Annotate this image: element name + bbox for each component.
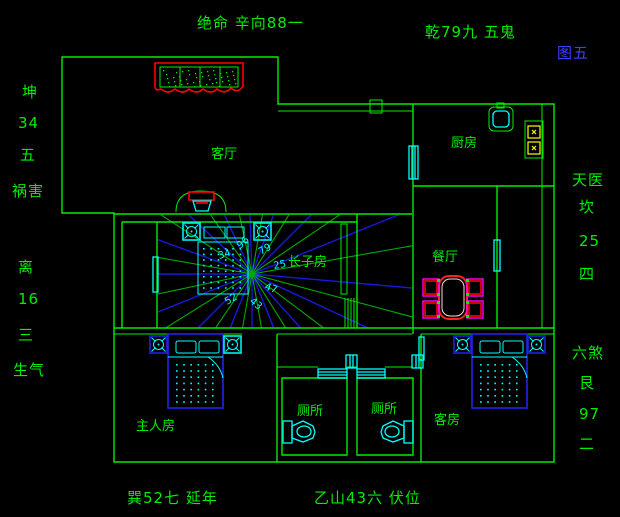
figure-title: 图五 — [557, 44, 589, 62]
dining-chair — [423, 301, 440, 318]
label-kun: 坤 — [22, 83, 38, 101]
room-label-kitchen: 厨房 — [451, 135, 477, 151]
room-label-toilet-right: 厕所 — [371, 402, 397, 417]
dining-set — [423, 276, 483, 319]
eldest-room-east-window — [341, 224, 347, 294]
nightstand-lamp — [528, 336, 545, 353]
compass-number: 25 — [273, 259, 287, 272]
label-bottom-center: 乙山43六 伏位 — [314, 489, 421, 507]
stove — [525, 121, 543, 158]
label-liusha: 六煞 — [572, 344, 604, 362]
floorplan-drawing: 绝命 辛向88一 乾79九 五鬼 图五 坤 34 五 祸害 离 16 三 生气 … — [0, 0, 620, 517]
label-huohai: 祸害 — [12, 182, 44, 200]
label-bottom-left: 巽52七 延年 — [127, 489, 218, 507]
cad-floorplan-canvas[interactable]: 绝命 辛向88一 乾79九 五鬼 图五 坤 34 五 祸害 离 16 三 生气 … — [0, 0, 620, 517]
label-34: 34 — [18, 114, 39, 132]
dining-chair — [466, 301, 483, 318]
label-li: 离 — [18, 258, 34, 276]
nightstand-lamp — [224, 336, 241, 353]
room-label-guest: 客房 — [434, 412, 460, 428]
nightstand-lamp — [150, 336, 167, 353]
label-si: 四 — [579, 265, 595, 283]
label-tianyi: 天医 — [572, 171, 604, 189]
stair-hatch — [345, 298, 354, 328]
master-bed — [168, 334, 223, 408]
toilet-jamb-hatch-left — [346, 355, 357, 368]
room-label-dining: 餐厅 — [432, 249, 458, 265]
label-kan: 坎 — [579, 198, 595, 216]
label-25: 25 — [579, 232, 600, 250]
label-shengqi: 生气 — [13, 361, 45, 379]
nightstand-lamp — [454, 336, 471, 353]
room-label-living: 客厅 — [211, 146, 237, 162]
label-16: 16 — [18, 290, 39, 308]
room-label-eldest-son: 长子房 — [288, 254, 327, 270]
guest-bed — [472, 334, 527, 408]
sofa — [155, 63, 243, 92]
label-wu: 五 — [20, 146, 36, 164]
toilet-fixture-left — [283, 421, 315, 443]
dining-chair — [466, 279, 483, 296]
nightstand-lamp — [254, 223, 271, 240]
room-labels: 客厅 厨房 餐厅 长子房 主人房 厕所 厕所 客房 — [136, 135, 477, 434]
compass-number: 47 — [263, 281, 279, 296]
label-gen: 艮 — [579, 374, 595, 392]
room-label-master: 主人房 — [136, 418, 175, 434]
label-97: 97 — [579, 405, 600, 423]
label-top: 绝命 辛向88一 — [197, 14, 304, 32]
label-er: 二 — [579, 435, 595, 453]
dining-chair — [423, 279, 440, 296]
label-san: 三 — [18, 326, 34, 344]
toilet-left-window — [318, 369, 347, 378]
toilet-right-window — [357, 369, 385, 378]
kitchen-sink — [489, 103, 513, 131]
room-label-toilet-left: 厕所 — [297, 404, 323, 419]
tv-cabinet — [176, 191, 226, 212]
toilet-fixture-right — [381, 421, 413, 443]
label-top-right: 乾79九 五鬼 — [425, 23, 516, 41]
compass-number: 96 — [235, 235, 252, 252]
